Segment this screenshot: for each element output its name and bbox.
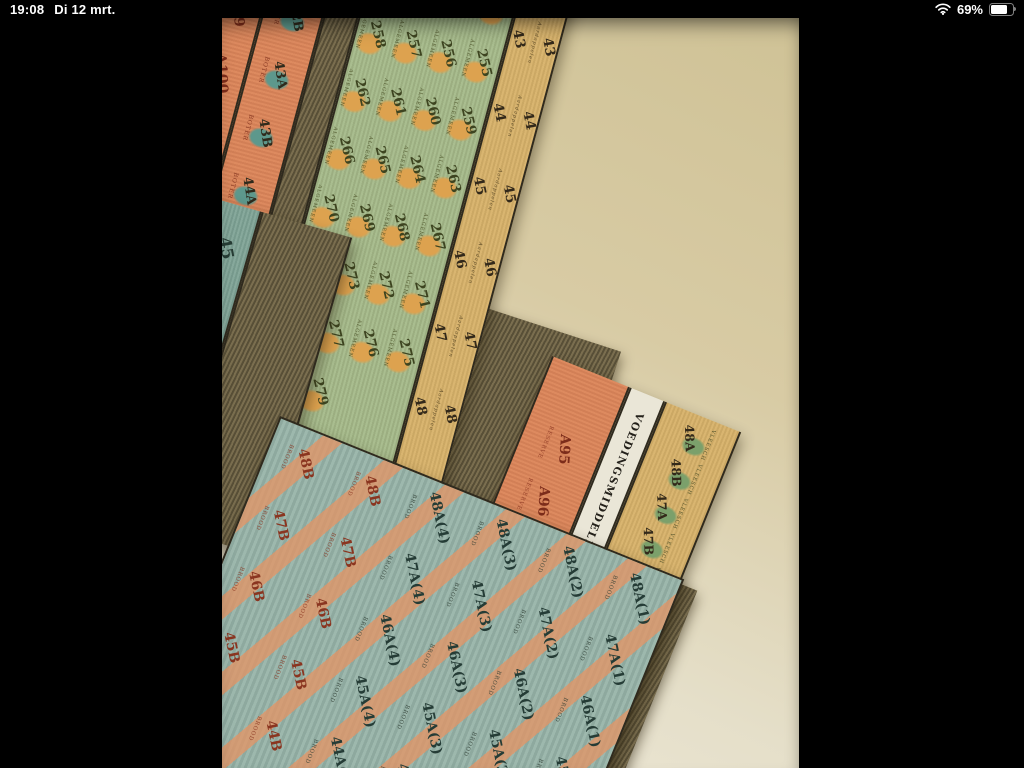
boter-coupon: BOTER 43A — [252, 40, 302, 107]
date-label: Di 12 mrt. — [54, 2, 115, 17]
photo-canvas[interactable]: RESERVE A97 RESERVE A98 RESERVE A99 RESE… — [222, 18, 799, 768]
boter-coupon: BOTER 43B — [236, 98, 286, 165]
clock-label: 19:08 — [10, 2, 44, 17]
status-bar: 19:08 Di 12 mrt. 69% — [0, 0, 1024, 18]
wifi-icon — [935, 3, 951, 15]
battery-percent: 69% — [957, 2, 983, 17]
battery-icon — [989, 3, 1014, 16]
